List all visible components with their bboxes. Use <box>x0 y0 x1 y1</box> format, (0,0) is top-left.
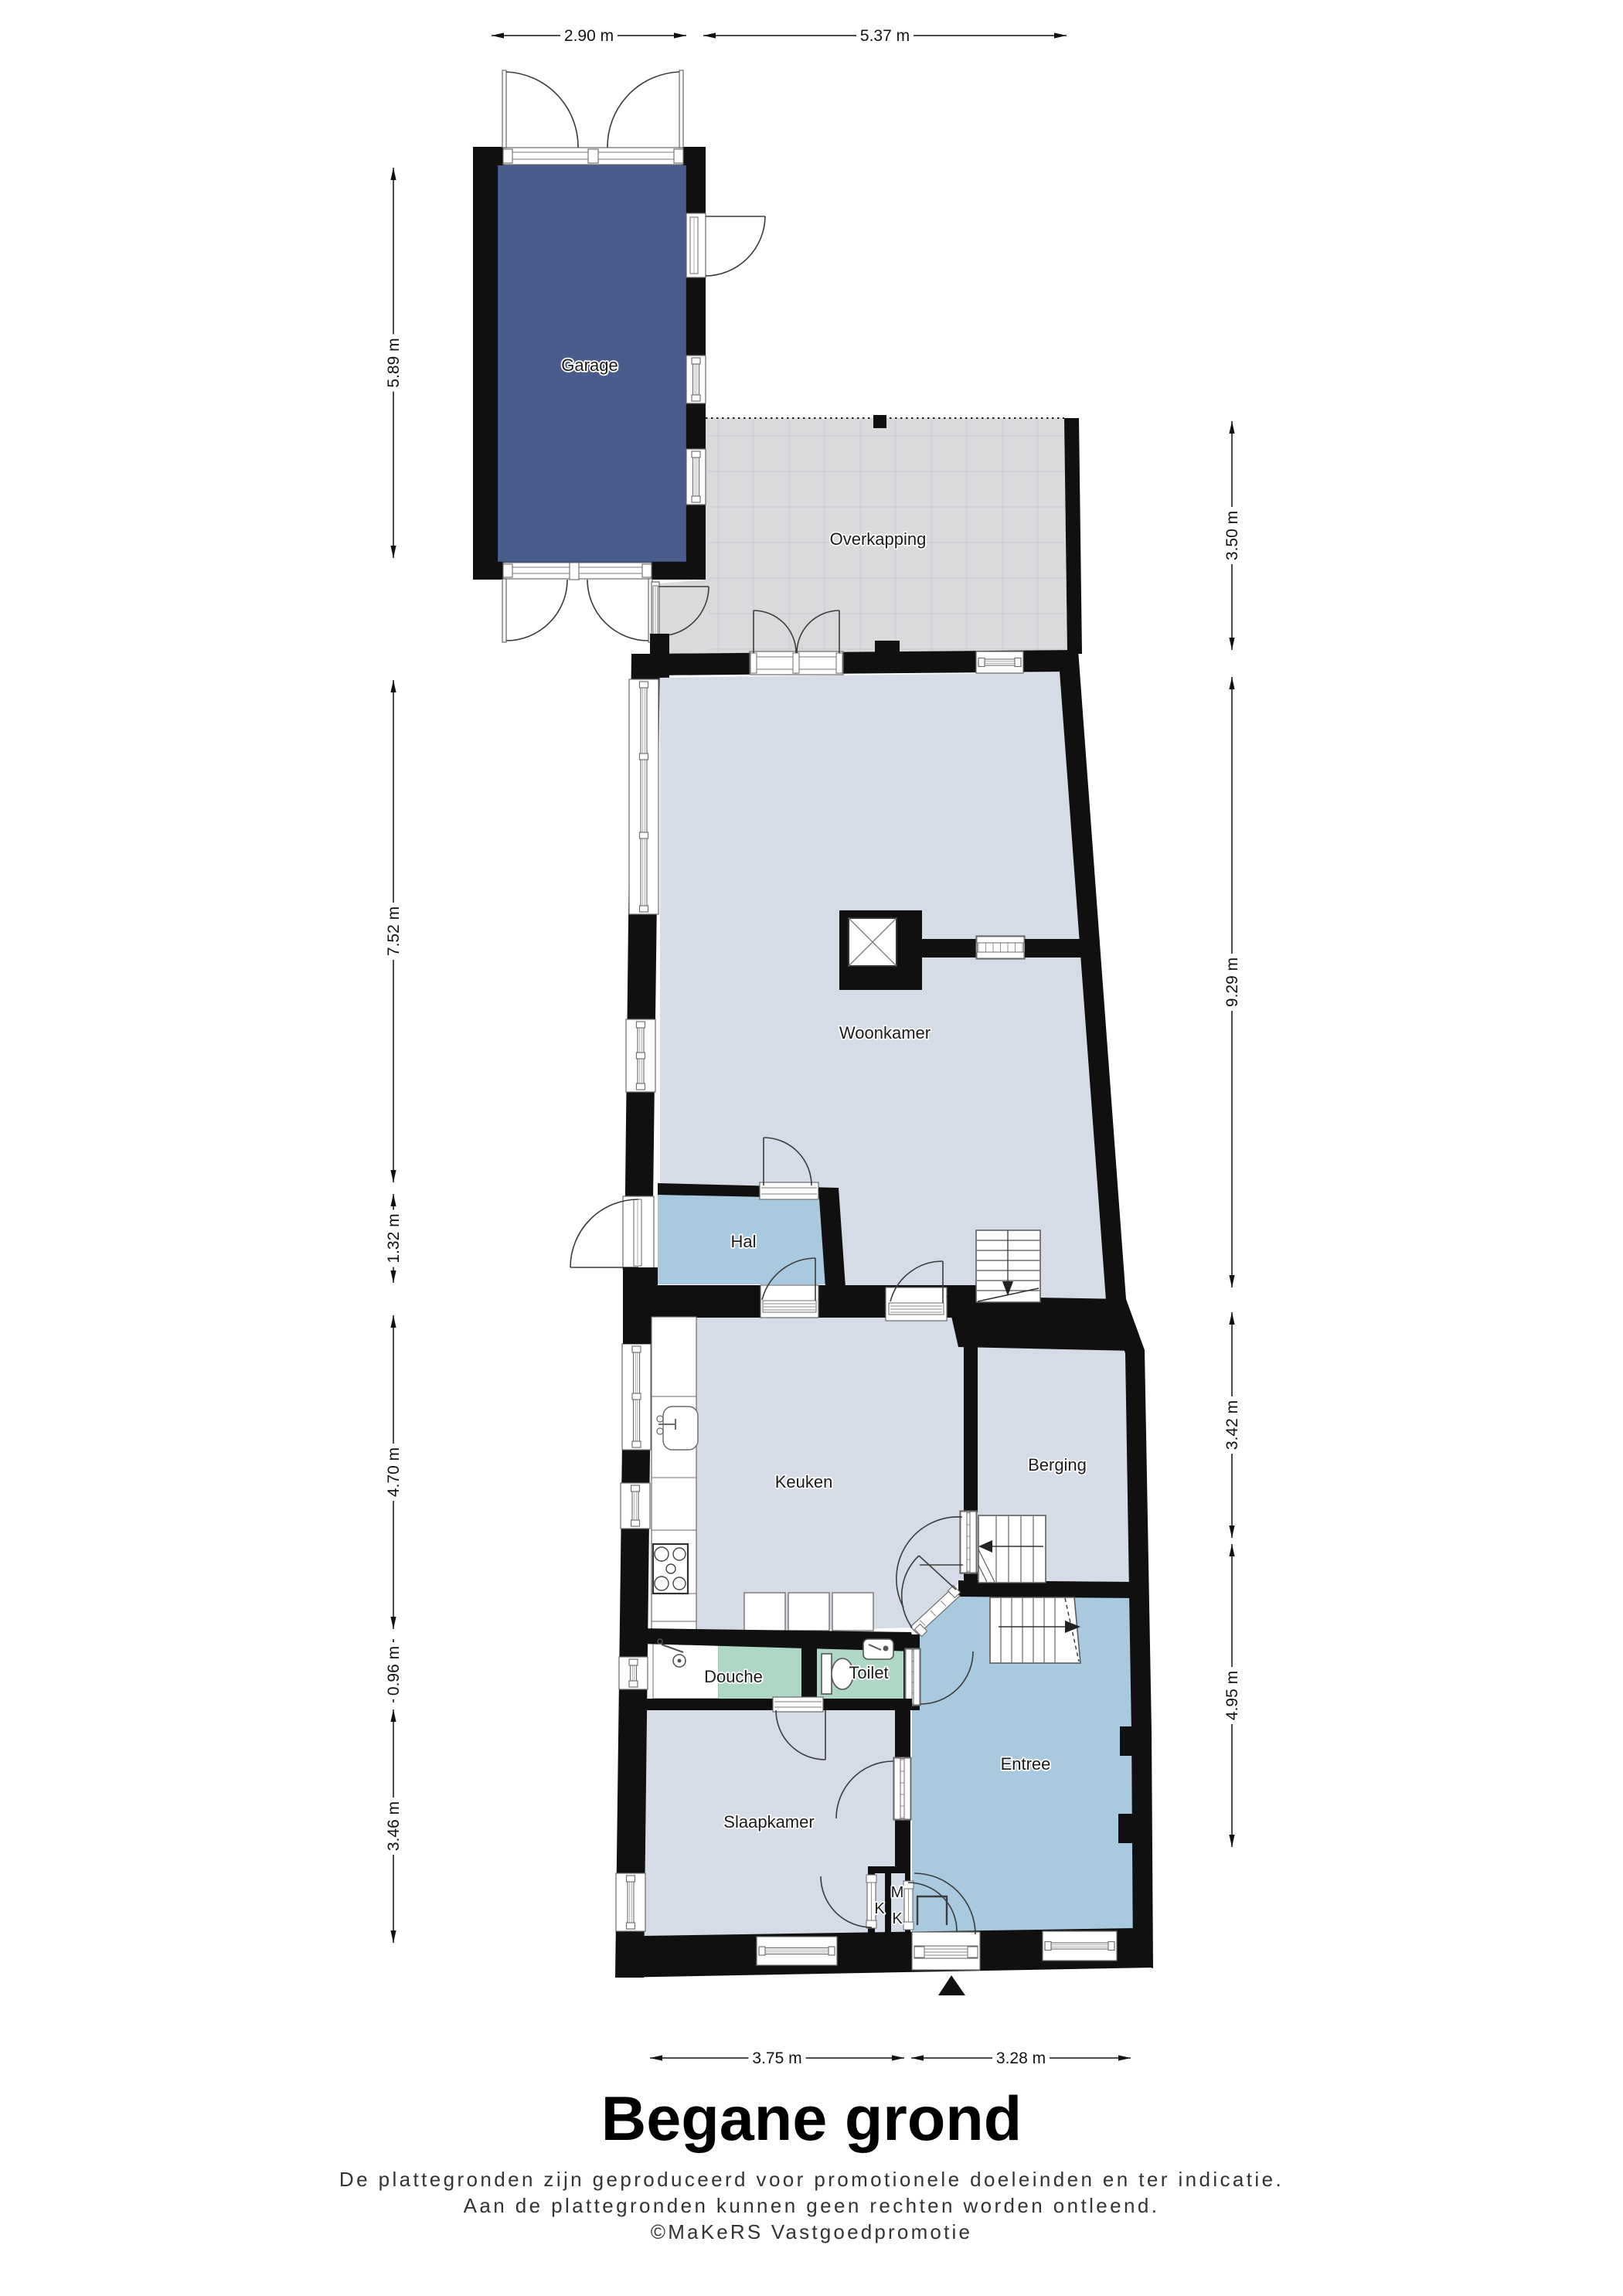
svg-text:Keuken: Keuken <box>775 1472 833 1492</box>
svg-text:Berging: Berging <box>1028 1455 1087 1475</box>
svg-text:Douche: Douche <box>704 1667 763 1686</box>
svg-text:9.29 m: 9.29 m <box>1223 958 1241 1007</box>
svg-text:2.90 m: 2.90 m <box>564 27 614 45</box>
svg-text:1.32 m: 1.32 m <box>385 1213 403 1263</box>
svg-text:7.52 m: 7.52 m <box>385 906 403 956</box>
svg-text:3.75 m: 3.75 m <box>752 2049 801 2067</box>
svg-text:De plattegronden zijn geproduc: De plattegronden zijn geproduceerd voor … <box>339 2168 1284 2191</box>
svg-text:©MaKeRS Vastgoedpromotie: ©MaKeRS Vastgoedpromotie <box>651 2220 972 2243</box>
svg-text:5.37 m: 5.37 m <box>860 27 910 45</box>
svg-text:3.28 m: 3.28 m <box>996 2049 1046 2067</box>
svg-text:Entree: Entree <box>1001 1754 1051 1774</box>
svg-text:Garage: Garage <box>561 355 618 375</box>
svg-text:Hal: Hal <box>730 1232 756 1251</box>
svg-text:Begane grond: Begane grond <box>601 2084 1022 2154</box>
svg-text:3.50 m: 3.50 m <box>1223 511 1241 560</box>
svg-text:Slaapkamer: Slaapkamer <box>723 1812 814 1832</box>
svg-text:4.70 m: 4.70 m <box>385 1447 403 1497</box>
svg-text:K: K <box>874 1900 885 1917</box>
svg-text:5.89 m: 5.89 m <box>385 338 403 387</box>
svg-text:Woonkamer: Woonkamer <box>839 1023 931 1043</box>
svg-text:3.46 m: 3.46 m <box>385 1801 403 1851</box>
svg-text:Overkapping: Overkapping <box>830 529 927 549</box>
svg-text:Toilet: Toilet <box>849 1663 888 1682</box>
svg-text:4.95 m: 4.95 m <box>1223 1671 1241 1720</box>
svg-text:K: K <box>892 1910 903 1927</box>
svg-text:3.42 m: 3.42 m <box>1223 1400 1241 1450</box>
svg-text:0.96 m: 0.96 m <box>385 1646 403 1696</box>
svg-text:Aan de plattegronden kunnen ge: Aan de plattegronden kunnen geen rechten… <box>464 2194 1160 2217</box>
svg-text:M: M <box>891 1884 904 1901</box>
